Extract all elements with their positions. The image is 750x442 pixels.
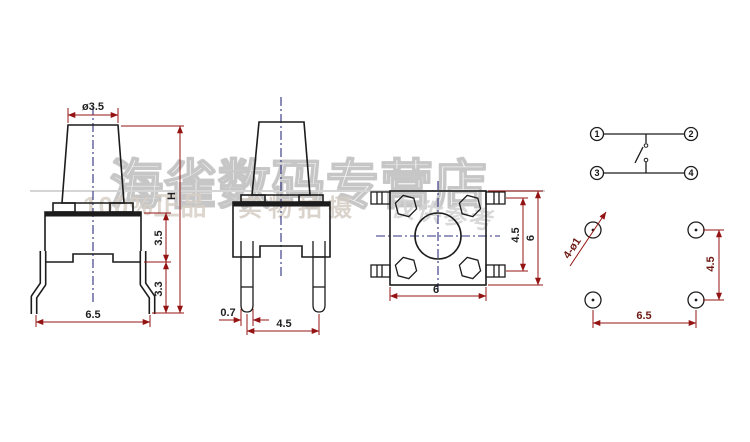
schematic-pin-4: 4: [685, 167, 698, 180]
side-view: ø3.5 H 3.5 3.3: [34, 101, 184, 327]
svg-text:3.3: 3.3: [153, 281, 165, 296]
svg-text:6.5: 6.5: [85, 309, 100, 321]
top-dim-width: 6: [390, 284, 486, 301]
svg-text:H: H: [166, 192, 178, 200]
svg-text:6.5: 6.5: [636, 310, 651, 322]
side-dim-body-height: 3.5: [144, 213, 171, 262]
schematic-pin-2: 2: [685, 128, 698, 141]
schematic-pin-3: 3: [591, 167, 604, 180]
svg-text:4-ø1: 4-ø1: [561, 236, 584, 261]
svg-text:4.5: 4.5: [276, 318, 291, 330]
front-dim-pin-pitch: 4.5: [247, 314, 319, 335]
front-leg-left: [241, 241, 253, 312]
side-leg-left: [34, 251, 43, 314]
front-body-top-band: [233, 202, 330, 207]
side-stem-flange-left: [53, 203, 75, 212]
front-stem-flange-left: [241, 195, 265, 202]
front-view: 0.7 4.5: [219, 97, 330, 335]
side-body-top-band: [45, 212, 141, 217]
circuit-schematic: 1 2 3 4: [591, 128, 698, 180]
top-view: 6 4.5 6: [371, 181, 543, 301]
front-leg-right: [313, 241, 325, 312]
drawing-canvas: ø3.5 H 3.5 3.3: [0, 0, 750, 442]
pcb-footprint: 4-ø1 4.5 6.5: [561, 212, 724, 328]
footprint-dim-hole-span: 6.5: [593, 310, 696, 328]
footprint-hole-spec-leader: 4-ø1: [561, 212, 606, 266]
svg-text:ø3.5: ø3.5: [82, 101, 104, 113]
svg-text:3: 3: [594, 168, 599, 178]
side-leg-right: [143, 251, 152, 314]
svg-text:0.7: 0.7: [220, 307, 235, 319]
svg-text:6: 6: [433, 284, 439, 296]
schematic-pin-1: 1: [591, 128, 604, 141]
svg-text:2: 2: [688, 129, 693, 139]
side-stem-flange-right: [110, 203, 133, 212]
front-dim-pin-width: 0.7: [219, 307, 269, 326]
footprint-holes: [585, 222, 704, 308]
side-dim-foot-span: 6.5: [36, 309, 150, 327]
svg-text:4: 4: [688, 168, 693, 178]
footprint-dim-row-pitch: 4.5: [703, 230, 724, 300]
svg-text:4.5: 4.5: [510, 227, 522, 242]
tact-switch-dimension-drawing: 海雀数码专营店 100%正品 实物拍摄 仅供参考: [0, 0, 750, 442]
front-stem-flange-right: [299, 195, 323, 202]
svg-text:6: 6: [525, 235, 537, 241]
svg-text:1: 1: [594, 129, 599, 139]
schematic-switch-contact: [635, 134, 648, 173]
svg-text:4.5: 4.5: [705, 256, 717, 271]
top-dim-pin-row-pitch: 4.5: [506, 198, 528, 271]
svg-text:3.5: 3.5: [153, 230, 165, 245]
